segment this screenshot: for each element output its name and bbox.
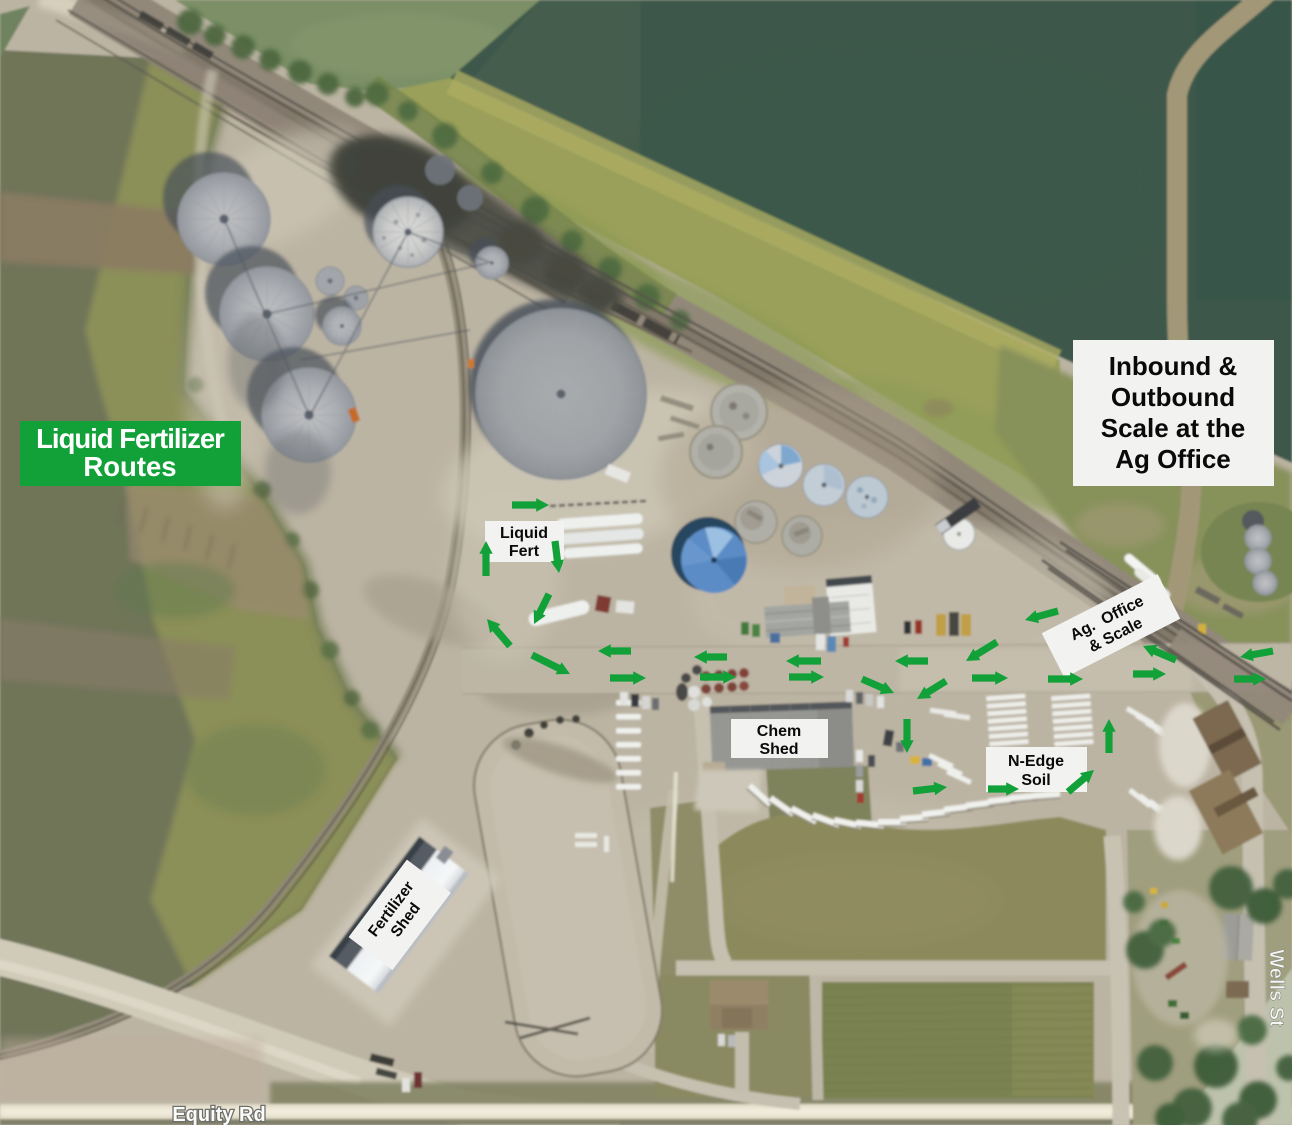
svg-text:Inbound &: Inbound & bbox=[1109, 351, 1238, 381]
svg-text:Scale at the: Scale at the bbox=[1101, 413, 1246, 443]
svg-text:Wells St: Wells St bbox=[1265, 949, 1287, 1027]
svg-text:Ag Office: Ag Office bbox=[1115, 444, 1231, 474]
svg-text:Outbound: Outbound bbox=[1111, 382, 1235, 412]
svg-text:Chem: Chem bbox=[757, 723, 801, 740]
svg-text:Shed: Shed bbox=[759, 741, 798, 758]
svg-text:Liquid: Liquid bbox=[500, 525, 548, 542]
svg-text:Liquid Fertilizer: Liquid Fertilizer bbox=[36, 423, 225, 454]
svg-text:Fert: Fert bbox=[509, 543, 540, 560]
svg-text:N-Edge: N-Edge bbox=[1008, 753, 1064, 770]
svg-text:Routes: Routes bbox=[83, 451, 176, 482]
svg-text:Equity Rd: Equity Rd bbox=[172, 1104, 265, 1125]
svg-text:Soil: Soil bbox=[1021, 772, 1050, 789]
